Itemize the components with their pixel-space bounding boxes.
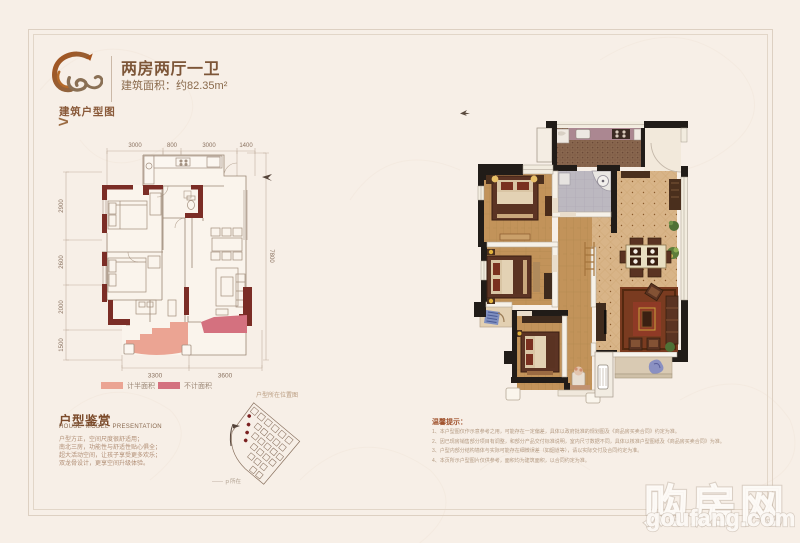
svg-text:2600: 2600 bbox=[59, 255, 65, 269]
svg-text:800: 800 bbox=[167, 143, 178, 149]
svg-text:1500: 1500 bbox=[59, 338, 65, 352]
svg-text:3600: 3600 bbox=[218, 373, 233, 380]
svg-text:2000: 2000 bbox=[59, 300, 65, 314]
svg-text:7800: 7800 bbox=[268, 249, 274, 263]
svg-text:3300: 3300 bbox=[148, 373, 163, 380]
svg-text:1400: 1400 bbox=[239, 143, 253, 149]
svg-text:2900: 2900 bbox=[59, 199, 65, 213]
svg-text:3000: 3000 bbox=[202, 143, 216, 149]
svg-text:3000: 3000 bbox=[128, 143, 142, 149]
